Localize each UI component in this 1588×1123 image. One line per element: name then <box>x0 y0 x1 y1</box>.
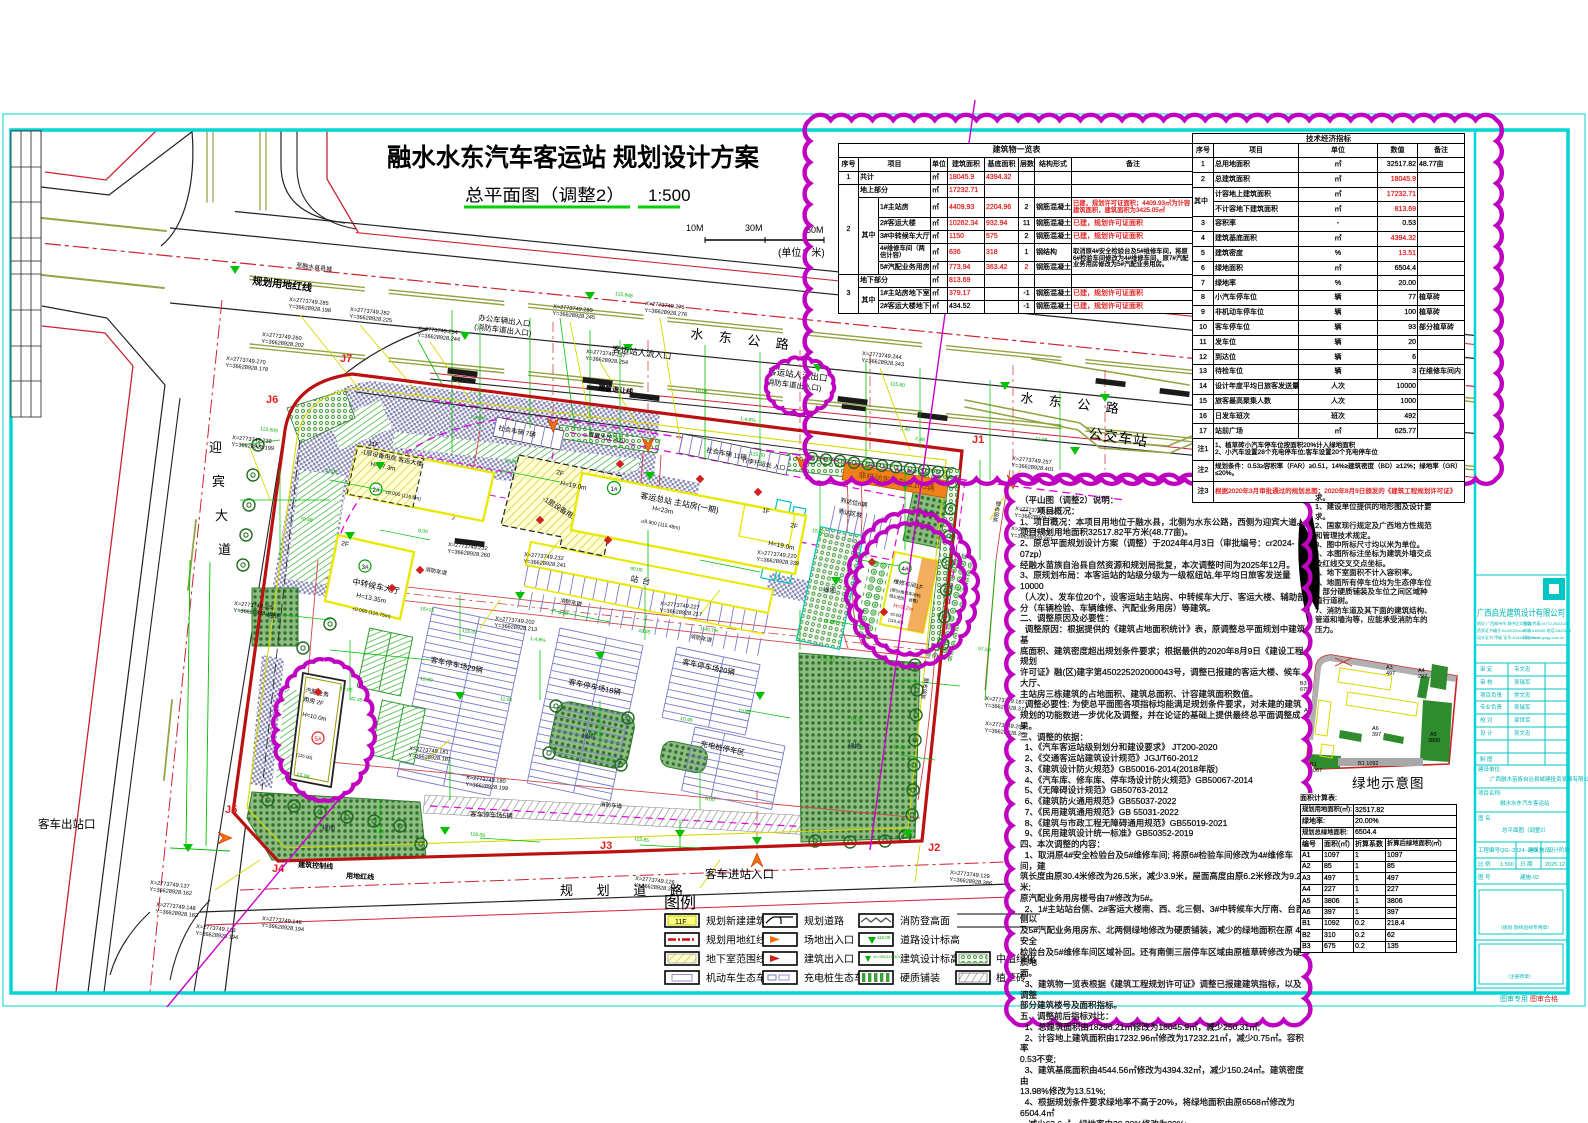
svg-text:227: 227 <box>1418 674 1427 680</box>
svg-text:韦文忠: 韦文忠 <box>1514 665 1531 673</box>
svg-text:图审专用 图审合格: 图审专用 图审合格 <box>1500 994 1558 1003</box>
svg-text:57.50: 57.50 <box>978 646 991 654</box>
svg-text:设 计: 设 计 <box>1480 729 1493 737</box>
svg-text:客车进站入口: 客车进站入口 <box>705 867 774 881</box>
svg-text:总平面图（调整2）: 总平面图（调整2） <box>465 186 625 205</box>
svg-text:图 名:: 图 名: <box>1478 814 1493 822</box>
svg-text:规划道路: 规划道路 <box>804 915 844 928</box>
svg-text:总平面图（调整2）: 总平面图（调整2） <box>1502 826 1549 834</box>
svg-text:3806: 3806 <box>1428 738 1440 744</box>
svg-text:项目名称:: 项目名称: <box>1478 789 1502 797</box>
svg-text:专业负责: 专业负责 <box>1480 703 1503 711</box>
svg-text:项目负责: 项目负责 <box>1480 691 1503 699</box>
svg-text:水 东 公 路: 水 东 公 路 <box>690 326 796 353</box>
svg-text:网址:www.gxqg.com.cn: 网址:www.gxqg.com.cn <box>1523 634 1564 640</box>
svg-text:2.48: 2.48 <box>915 436 926 443</box>
svg-text:4#: 4# <box>901 566 909 573</box>
svg-text:用地红线: 用地红线 <box>346 871 374 881</box>
svg-text:（规划 放线验线专用章）: （规划 放线验线专用章） <box>1498 924 1552 931</box>
svg-text:硬质铺装: 硬质铺装 <box>900 972 940 985</box>
svg-text:497: 497 <box>1386 671 1395 677</box>
svg-text:绿地: 绿地 <box>322 823 336 832</box>
svg-text:3#: 3# <box>361 564 369 571</box>
svg-text:16.06: 16.06 <box>695 388 708 396</box>
svg-text:邮编:545006 电话:2820131: 邮编:545006 电话:2820131 <box>1523 627 1572 633</box>
svg-text:场地出入口: 场地出入口 <box>804 934 854 947</box>
svg-text:115.60: 115.60 <box>890 381 906 389</box>
svg-text:2F: 2F <box>790 522 799 530</box>
svg-text:30M: 30M <box>745 223 763 233</box>
svg-text:宾: 宾 <box>212 474 225 489</box>
svg-text:2F: 2F <box>556 469 565 477</box>
svg-text:J2: J2 <box>928 842 940 854</box>
svg-text:B1 1092: B1 1092 <box>1358 761 1379 767</box>
svg-text:115.948: 115.948 <box>615 291 634 299</box>
svg-text:迎: 迎 <box>209 440 222 455</box>
svg-text:图 号: 图 号 <box>1478 873 1491 881</box>
svg-text:消防车道: 消防车道 <box>991 500 1003 524</box>
svg-text:J1: J1 <box>972 434 984 446</box>
svg-text:(单位：米): (单位：米) <box>778 246 825 259</box>
svg-text:审 核: 审 核 <box>1480 678 1493 686</box>
svg-text:J5: J5 <box>225 804 237 816</box>
svg-text:广西融水苗族自治县城建投资发展有限公司: 广西融水苗族自治县城建投资发展有限公司 <box>1490 775 1588 783</box>
svg-text:J7: J7 <box>340 353 352 365</box>
svg-text:5#: 5# <box>314 736 322 743</box>
svg-text:±0.000(116.40): ±0.000(116.40) <box>873 954 900 959</box>
svg-text:2025.12: 2025.12 <box>1545 862 1565 868</box>
svg-text:1#: 1# <box>610 486 618 493</box>
svg-text:1:500: 1:500 <box>648 186 691 205</box>
svg-text:建施-02: 建施-02 <box>1520 873 1539 881</box>
svg-text:规划用地红线: 规划用地红线 <box>706 934 766 947</box>
svg-text:融水水东汽车客运站: 融水水东汽车客运站 <box>1500 799 1550 807</box>
svg-text:1:500: 1:500 <box>1500 862 1514 868</box>
svg-text:大: 大 <box>215 508 228 523</box>
svg-text:（注册师章）: （注册师章） <box>1505 973 1534 980</box>
svg-text:图例: 图例 <box>664 894 696 912</box>
svg-text:资质证书编号:A145002xxx: 资质证书编号:A145002xxx <box>1477 627 1524 633</box>
svg-text:广西启光建筑设计有限公司: 广西启光建筑设计有限公司 <box>1477 607 1565 618</box>
svg-text:吴瑞军: 吴瑞军 <box>1514 703 1531 711</box>
svg-text:规划新建建筑: 规划新建建筑 <box>706 915 766 928</box>
svg-text:11.08: 11.08 <box>1035 436 1048 444</box>
svg-text:397: 397 <box>1372 732 1381 738</box>
svg-text:常文忠: 常文忠 <box>1514 691 1531 699</box>
svg-text:建筑设计标高: 建筑设计标高 <box>900 953 960 966</box>
svg-text:2#: 2# <box>372 487 380 494</box>
svg-text:工程编号: 工程编号 <box>1478 846 1501 854</box>
svg-text:审 定: 审 定 <box>1480 665 1493 673</box>
svg-text:消防登高面: 消防登高面 <box>900 915 950 928</box>
svg-text:10M: 10M <box>686 223 704 233</box>
svg-text:地下室范围线: 地下室范围线 <box>706 953 766 966</box>
svg-text:制 图: 制 图 <box>1480 755 1493 763</box>
svg-text:吴瑞军: 吴瑞军 <box>1514 678 1531 686</box>
svg-text:设计阶段: 设计阶段 <box>1548 846 1571 854</box>
svg-text:绿地: 绿地 <box>268 611 282 620</box>
svg-text:J3: J3 <box>600 840 612 852</box>
svg-text:绿地示意图: 绿地示意图 <box>1352 775 1425 791</box>
svg-text:道路设计标高: 道路设计标高 <box>900 934 960 947</box>
svg-text:建筑控制线: 建筑控制线 <box>298 860 333 871</box>
svg-text:1F: 1F <box>762 507 771 515</box>
svg-text:校 对: 校 对 <box>1480 716 1493 724</box>
svg-text:绿地: 绿地 <box>823 585 837 594</box>
svg-text:建筑出入口: 建筑出入口 <box>804 953 854 966</box>
svg-text:梁世军: 梁世军 <box>1514 716 1531 724</box>
svg-text:客车出站口: 客车出站口 <box>38 817 96 831</box>
svg-text:电话(传真):0772-2820131: 电话(传真):0772-2820131 <box>1523 620 1569 626</box>
svg-text:至融水县县城: 至融水县县城 <box>296 261 333 273</box>
svg-text:比 例: 比 例 <box>1478 860 1491 868</box>
svg-text:规划用地红线: 规划用地红线 <box>252 274 313 294</box>
svg-text:11F: 11F <box>675 919 687 926</box>
svg-text:融水水东汽车客运站 规划设计方案: 融水水东汽车客运站 规划设计方案 <box>387 143 760 172</box>
svg-text:日 期: 日 期 <box>1520 861 1533 868</box>
svg-text:J6: J6 <box>266 394 278 406</box>
svg-text:115.09: 115.09 <box>877 935 891 940</box>
svg-text:吴文忠: 吴文忠 <box>1514 729 1531 737</box>
svg-text:建设单位:: 建设单位: <box>1478 765 1502 773</box>
svg-text:道: 道 <box>218 542 231 557</box>
svg-text:绿地: 绿地 <box>848 741 862 750</box>
svg-text:113.509: 113.509 <box>260 426 279 434</box>
